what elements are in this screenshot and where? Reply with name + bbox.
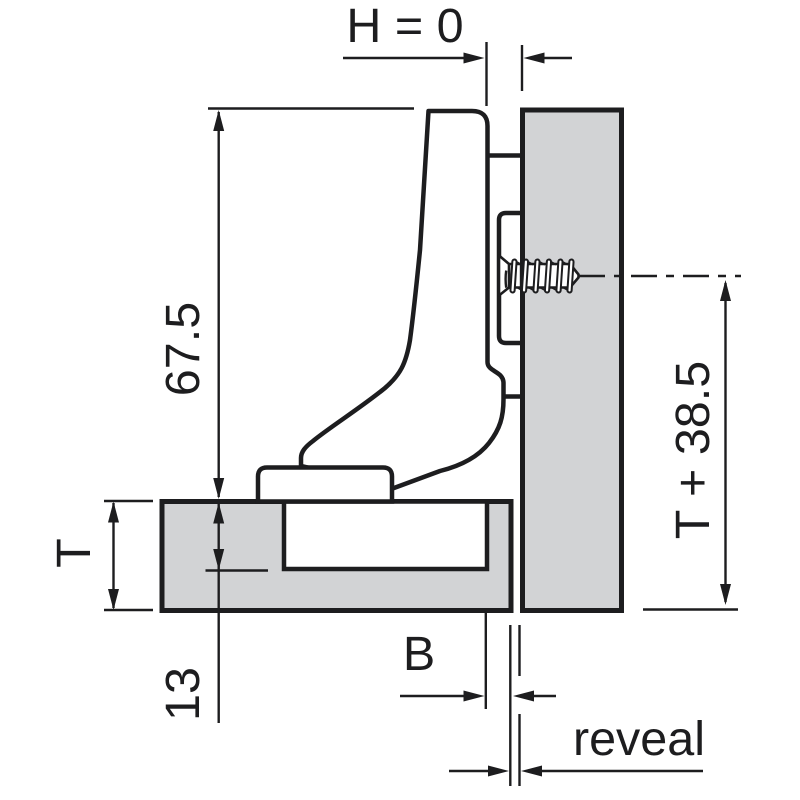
svg-text:B: B [403, 627, 435, 681]
svg-text:67.5: 67.5 [156, 302, 210, 396]
svg-text:T: T [47, 538, 101, 568]
svg-text:H = 0: H = 0 [346, 0, 463, 53]
svg-text:reveal: reveal [573, 712, 705, 766]
svg-text:T + 38.5: T + 38.5 [666, 361, 720, 539]
svg-text:13: 13 [156, 667, 210, 721]
